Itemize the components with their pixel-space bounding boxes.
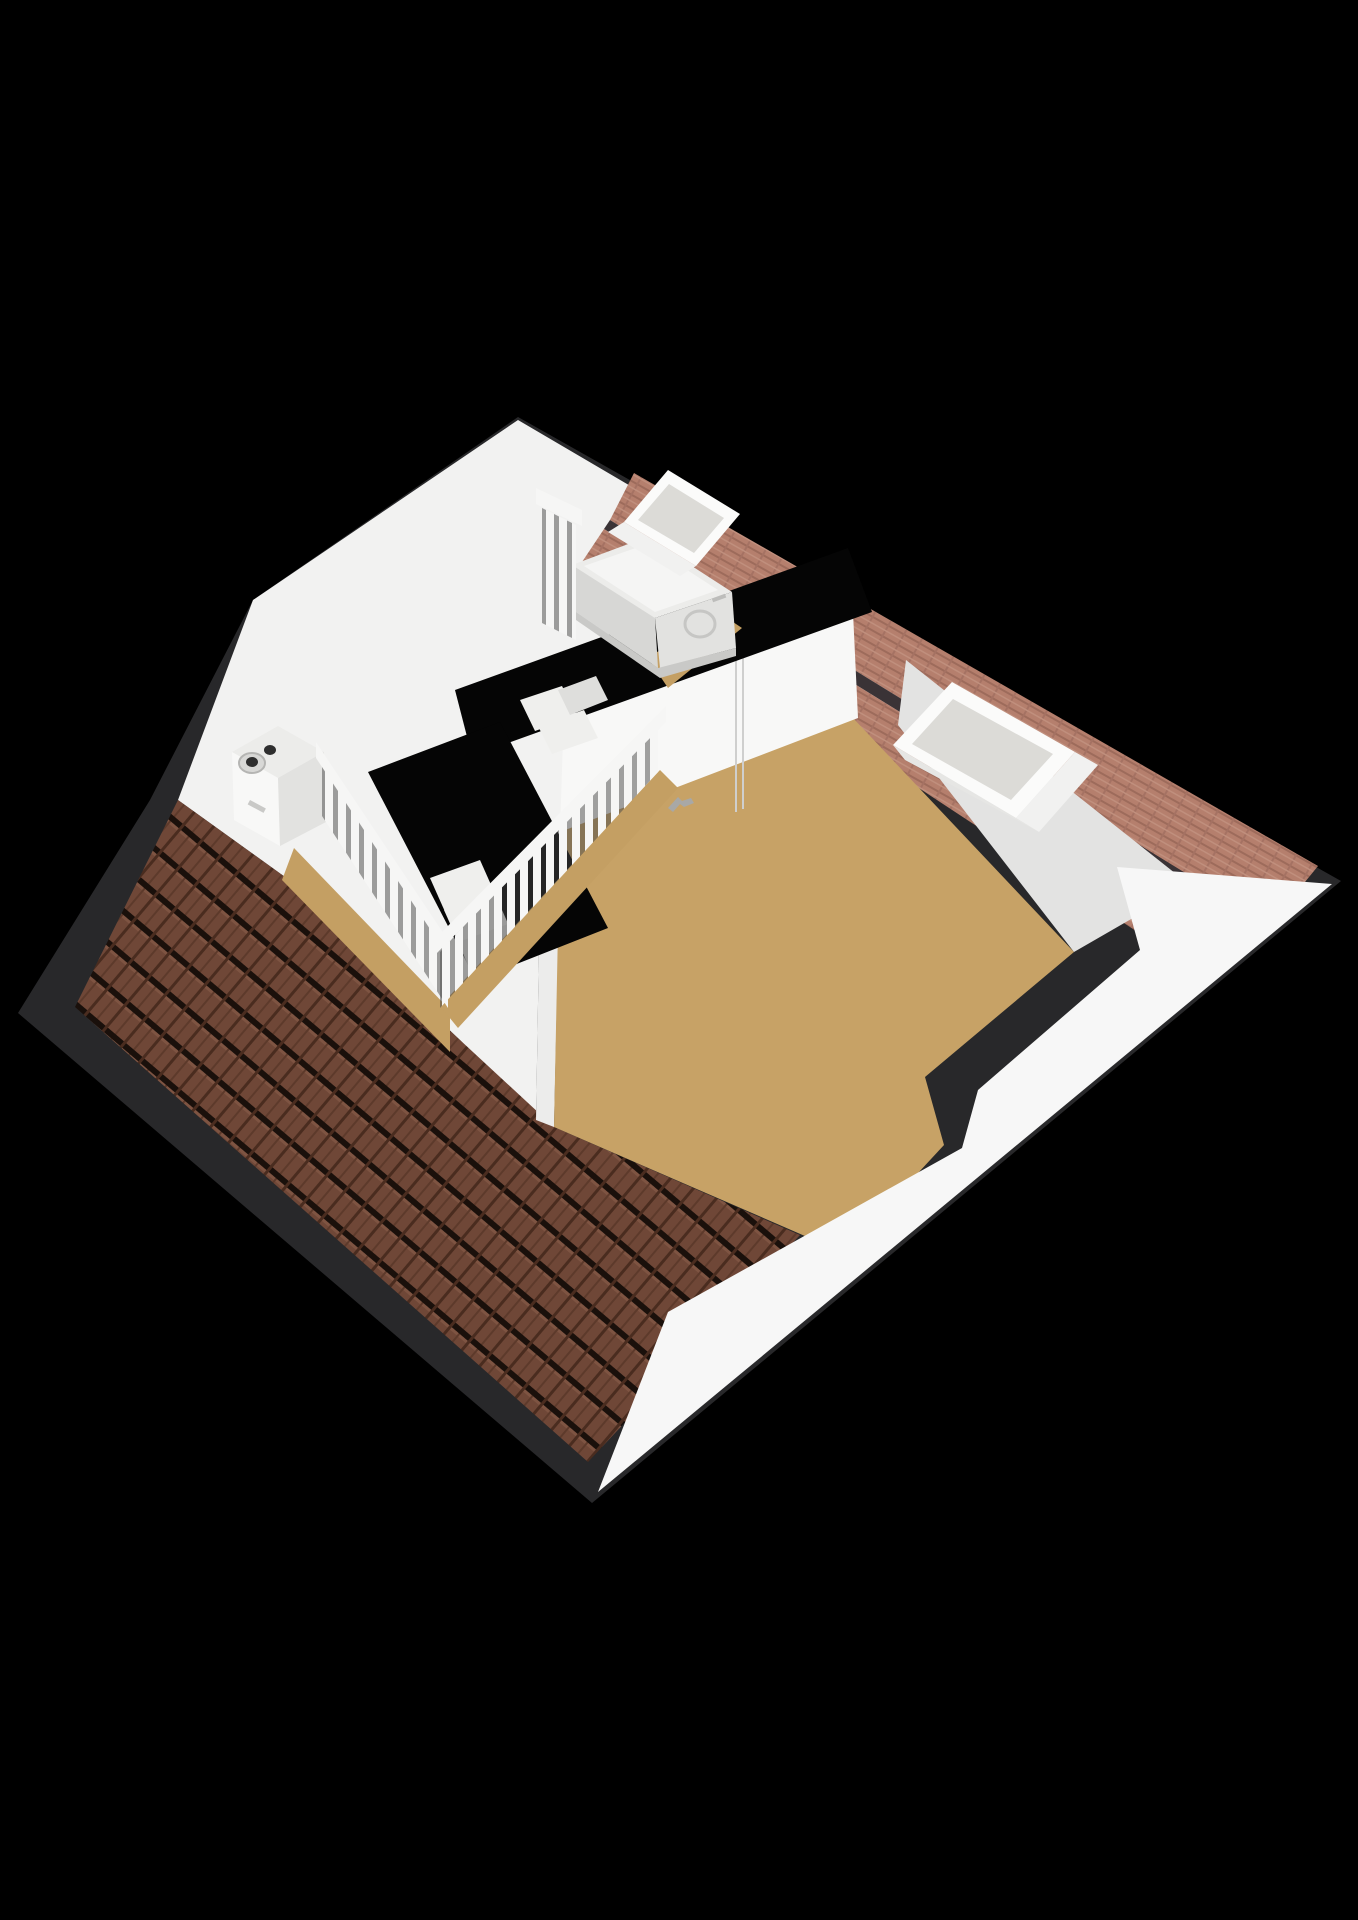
floorplan-3d-canvas[interactable] <box>0 0 1358 1920</box>
boiler-air-pipe <box>264 745 276 755</box>
boiler-flue-pipe <box>246 757 258 767</box>
railing-balusters <box>542 508 576 640</box>
railing-top <box>536 488 582 640</box>
attic-3d-render <box>0 0 1358 1920</box>
